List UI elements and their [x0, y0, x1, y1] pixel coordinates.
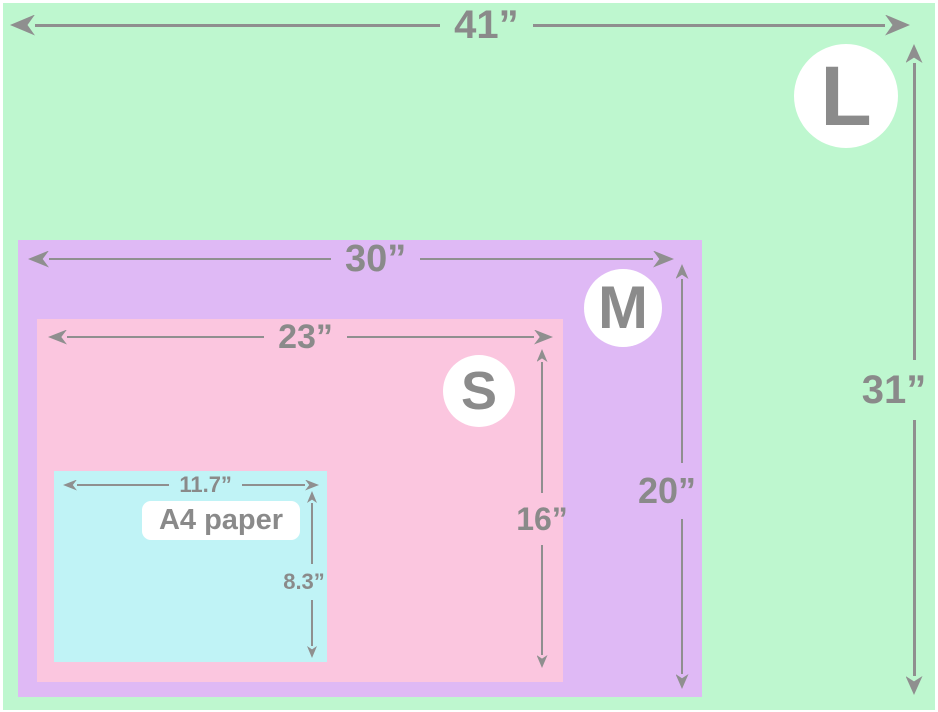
dimension-label-height-a4: 8.3”	[283, 564, 325, 600]
arrowhead-right-icon	[534, 330, 553, 345]
arrowhead-left-icon	[28, 251, 49, 268]
dimension-width-a4: 11.7”	[63, 472, 319, 498]
arrowhead-left-icon	[10, 15, 35, 36]
arrowhead-left-icon	[48, 330, 67, 345]
dimension-line	[35, 24, 440, 27]
size-badge-l-letter: L	[820, 54, 871, 138]
dimension-label-width-s: 23”	[264, 320, 347, 354]
size-badge-m-letter: M	[598, 278, 648, 338]
size-badge-s-letter: S	[461, 364, 497, 418]
dimension-line	[67, 336, 264, 338]
dimension-height-a4: 8.3”	[299, 491, 325, 658]
dimension-line	[913, 63, 916, 360]
dimension-line	[347, 336, 534, 338]
dimension-label-width-a4: 11.7”	[169, 474, 242, 496]
arrowhead-left-icon	[63, 480, 77, 491]
dimension-label-height-s: 16”	[516, 493, 568, 545]
dimension-line	[681, 519, 683, 674]
dimension-label-width-l: 41”	[440, 5, 533, 45]
dimension-width-l: 41”	[10, 4, 910, 46]
arrowhead-right-icon	[885, 15, 910, 36]
dimension-line	[913, 420, 916, 676]
dimension-label-height-m: 20”	[638, 463, 696, 519]
arrowhead-right-icon	[305, 480, 319, 491]
arrowhead-down-icon	[676, 674, 689, 689]
arrowhead-down-icon	[307, 646, 317, 658]
dimension-height-s: 16”	[528, 349, 556, 668]
size-badge-s: S	[443, 355, 515, 427]
dimension-line	[242, 484, 305, 486]
dimension-line	[541, 545, 543, 655]
arrowhead-up-icon	[906, 44, 923, 63]
dimension-line	[681, 279, 683, 463]
dimension-line	[541, 362, 543, 493]
dimension-line	[77, 484, 169, 486]
dimension-height-m: 20”	[667, 264, 697, 689]
dimension-line	[420, 258, 653, 260]
size-badge-l: L	[794, 44, 898, 148]
arrowhead-down-icon	[906, 676, 923, 695]
dimension-line	[49, 258, 331, 260]
size-badge-m: M	[584, 269, 662, 347]
size-comparison-diagram: 41” 31” 30” 20” 23” 16”	[0, 0, 938, 712]
dimension-width-s: 23”	[48, 317, 553, 357]
a4-paper-tag-label: A4 paper	[159, 506, 283, 535]
arrowhead-down-icon	[537, 655, 548, 668]
dimension-height-l: 31”	[893, 44, 935, 695]
arrowhead-up-icon	[537, 349, 548, 362]
dimension-line	[533, 24, 885, 27]
dimension-width-m: 30”	[28, 238, 674, 280]
arrowhead-up-icon	[676, 264, 689, 279]
dimension-label-height-l: 31”	[862, 360, 927, 420]
dimension-line	[311, 503, 313, 564]
arrowhead-up-icon	[307, 491, 317, 503]
a4-paper-tag: A4 paper	[142, 501, 300, 540]
dimension-line	[311, 600, 313, 646]
dimension-label-width-m: 30”	[331, 240, 420, 278]
